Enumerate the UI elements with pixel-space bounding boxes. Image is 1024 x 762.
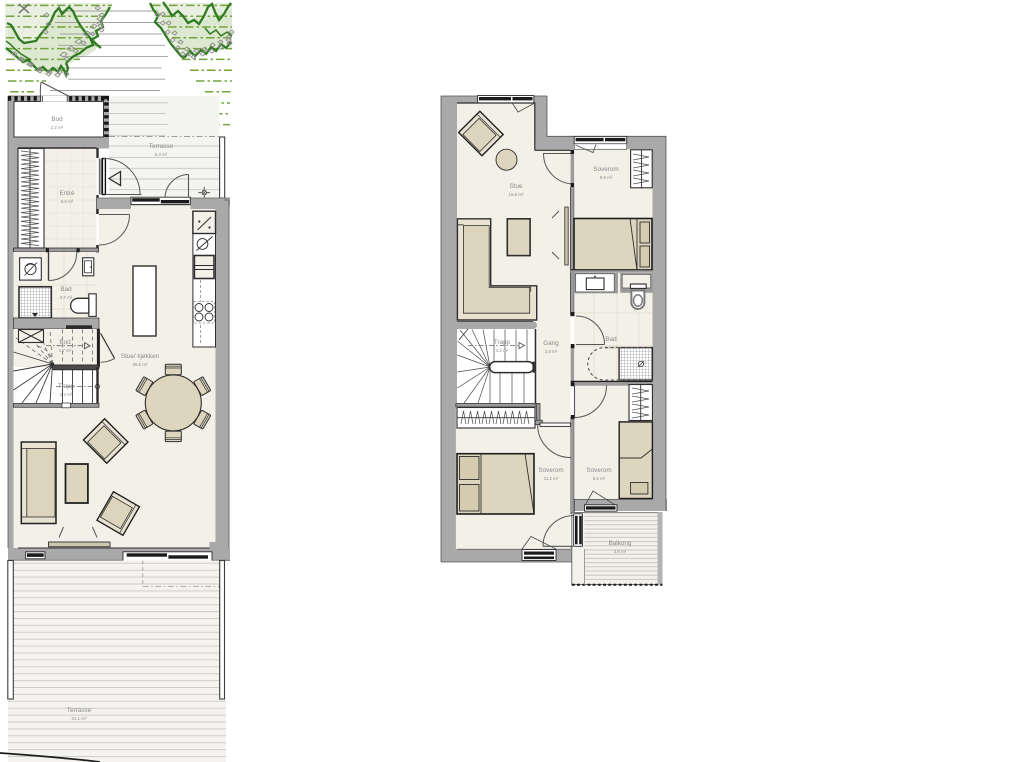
svg-text:8.3 m²: 8.3 m² [155,152,168,157]
svg-text:Terrasse: Terrasse [149,143,174,150]
svg-text:Bad: Bad [60,286,72,293]
svg-text:Bad: Bad [605,336,617,343]
svg-text:Terrasse: Terrasse [67,707,92,714]
svg-text:Soverom: Soverom [586,467,611,474]
svg-text:5.6 m²: 5.6 m² [61,199,74,204]
svg-text:Stue: Stue [510,183,523,190]
svg-text:Bod: Bod [51,116,63,123]
svg-text:3.6 m²: 3.6 m² [614,549,627,554]
svg-text:Soverom: Soverom [538,467,563,474]
svg-text:Soverom: Soverom [593,166,618,173]
svg-text:3.7 m²: 3.7 m² [60,295,73,300]
svg-text:Gang: Gang [543,340,559,347]
svg-text:36.6 m²: 36.6 m² [133,362,148,367]
svg-text:2.8 m²: 2.8 m² [545,349,558,354]
svg-text:16.6 m²: 16.6 m² [509,192,524,197]
svg-text:Stue/ kjøkken: Stue/ kjøkken [121,353,160,360]
svg-text:31.1 m²: 31.1 m² [72,716,87,721]
svg-text:11.2 m²: 11.2 m² [544,476,559,481]
svg-text:1.7 m²: 1.7 m² [59,348,72,353]
svg-text:Balkong: Balkong [609,540,632,547]
svg-text:Bod: Bod [59,339,71,346]
svg-text:Entré: Entré [59,190,75,197]
svg-text:6.9 m²: 6.9 m² [600,175,613,180]
svg-text:6.5 m²: 6.5 m² [593,476,606,481]
svg-text:4.2 m²: 4.2 m² [496,348,509,353]
svg-text:Trapp: Trapp [494,339,511,346]
svg-text:Trapp: Trapp [58,383,75,390]
svg-text:2.3 m²: 2.3 m² [60,392,73,397]
svg-text:2.2 m²: 2.2 m² [51,125,64,130]
